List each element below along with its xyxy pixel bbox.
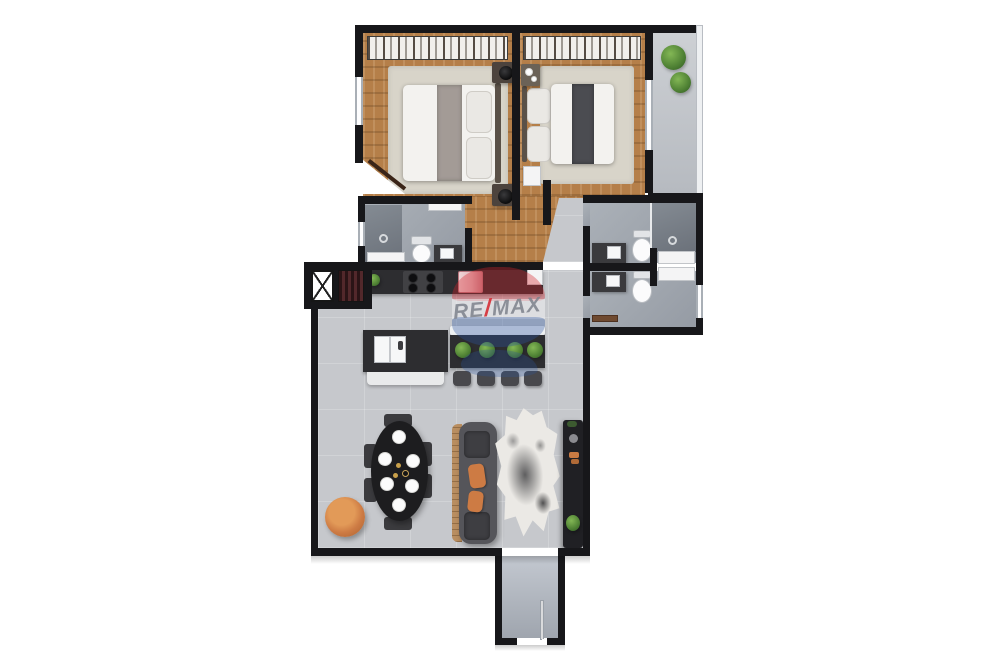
bathroom-1-shower-drain <box>379 234 388 243</box>
bedroom-1-pillow <box>466 137 492 179</box>
sofa-cushion <box>464 431 490 458</box>
remax-max: MAX <box>491 293 542 320</box>
bathroom-3-toilet <box>632 279 652 303</box>
wall <box>583 335 590 556</box>
floor-plan-render: RE/MAX <box>0 0 1000 667</box>
wall <box>311 548 502 556</box>
bathroom-3-sink <box>606 275 620 287</box>
wall <box>355 125 363 163</box>
wall <box>543 180 551 225</box>
linen-shelf <box>658 251 695 264</box>
bathroom-3-toilet-tank <box>633 271 651 279</box>
sofa-orange-cushion <box>467 490 484 512</box>
wall <box>645 33 653 80</box>
burner-icon <box>409 274 417 282</box>
wall <box>583 195 703 203</box>
window-icon <box>355 77 363 125</box>
tv-console-decor <box>569 452 579 458</box>
bathroom-1-sink <box>440 248 454 259</box>
bedroom-2-pillow <box>527 126 551 162</box>
wall <box>696 203 703 285</box>
place-setting <box>406 454 420 468</box>
bedroom-1-headboard <box>495 83 501 183</box>
window-icon <box>358 222 365 246</box>
wall <box>512 33 520 220</box>
burner-icon <box>427 274 435 282</box>
building-shadow <box>495 645 565 651</box>
wall <box>583 327 703 335</box>
bathroom-2-shower-glass <box>650 203 652 252</box>
entry-corridor-floor <box>502 556 558 638</box>
place-setting <box>380 477 394 491</box>
place-setting <box>392 430 406 444</box>
wall <box>358 196 472 204</box>
wall <box>311 309 318 556</box>
wall <box>650 248 657 286</box>
wardrobe-bedroom-1 <box>367 36 508 60</box>
wall <box>334 270 338 302</box>
door-jamb <box>517 639 522 644</box>
window-icon <box>645 80 653 150</box>
tv-console-decor <box>571 459 579 464</box>
island-cabinet-face <box>367 372 444 385</box>
bedroom-2-nightstand-dish <box>531 76 537 82</box>
bathroom-1-toilet <box>412 244 431 263</box>
wall <box>696 318 703 335</box>
bathroom-3-door-leaf <box>592 315 618 322</box>
wall <box>590 263 652 271</box>
table-centerpiece <box>396 463 401 468</box>
sofa-orange-cushion <box>467 463 486 489</box>
bedroom-1-lamp <box>499 66 513 80</box>
wall <box>547 638 565 645</box>
wall <box>645 150 653 193</box>
bedroom-1-lamp <box>498 189 513 204</box>
place-setting <box>405 479 419 493</box>
bathroom-2-door-gap-floor <box>583 203 590 228</box>
burner-icon <box>427 284 435 292</box>
stairwell <box>338 270 364 302</box>
bedroom-2-bench <box>523 166 541 186</box>
balcony-plant-icon <box>661 45 686 70</box>
faucet-icon <box>398 341 403 350</box>
bathroom-2-sink <box>607 246 621 259</box>
place-setting <box>392 498 406 512</box>
bedroom-2-bed-runner <box>572 84 594 164</box>
burner-icon <box>409 284 417 292</box>
wall <box>304 302 372 309</box>
elevator-shaft <box>311 270 334 302</box>
wall <box>355 25 703 33</box>
balcony-plant-icon <box>670 72 691 93</box>
door-opening <box>355 163 363 196</box>
bathroom-3-door-gap-floor <box>583 295 590 320</box>
wall <box>583 226 590 296</box>
bedroom-1-bed-runner <box>437 85 462 181</box>
wall <box>355 33 363 77</box>
bathroom-1-towel-shelf <box>367 252 405 262</box>
window-icon <box>696 285 703 318</box>
island-sink-divider <box>389 337 391 362</box>
door-jamb <box>542 639 547 644</box>
tv-console-plant-icon <box>567 421 577 427</box>
wall <box>495 638 517 645</box>
wardrobe-bedroom-2 <box>523 36 641 60</box>
sofa-cushion <box>464 512 490 540</box>
entry-door-leaf <box>540 600 544 640</box>
building-shadow <box>311 556 590 564</box>
bathroom-1-shelf <box>428 203 462 211</box>
bedroom-2-nightstand-dish <box>525 68 533 76</box>
table-centerpiece <box>402 470 409 477</box>
bedroom-1-pillow <box>466 91 492 133</box>
place-setting <box>378 452 392 466</box>
bedroom-2-pillow <box>527 88 551 124</box>
balcony-parapet <box>696 25 703 203</box>
bathroom-2-toilet <box>632 238 652 262</box>
accent-pouf <box>325 497 365 537</box>
bedroom-2-headboard <box>522 86 527 162</box>
remax-re: RE <box>452 298 485 324</box>
tv-console-plant-icon <box>566 515 580 531</box>
table-centerpiece <box>393 473 398 478</box>
bar-plant-icon <box>527 342 543 358</box>
bathroom-2-toilet-tank <box>633 230 651 238</box>
bathroom-2-shower-drain <box>668 236 677 245</box>
tv-console-decor <box>569 434 578 443</box>
linen-shelf <box>658 267 695 281</box>
bar-stool <box>453 371 471 386</box>
